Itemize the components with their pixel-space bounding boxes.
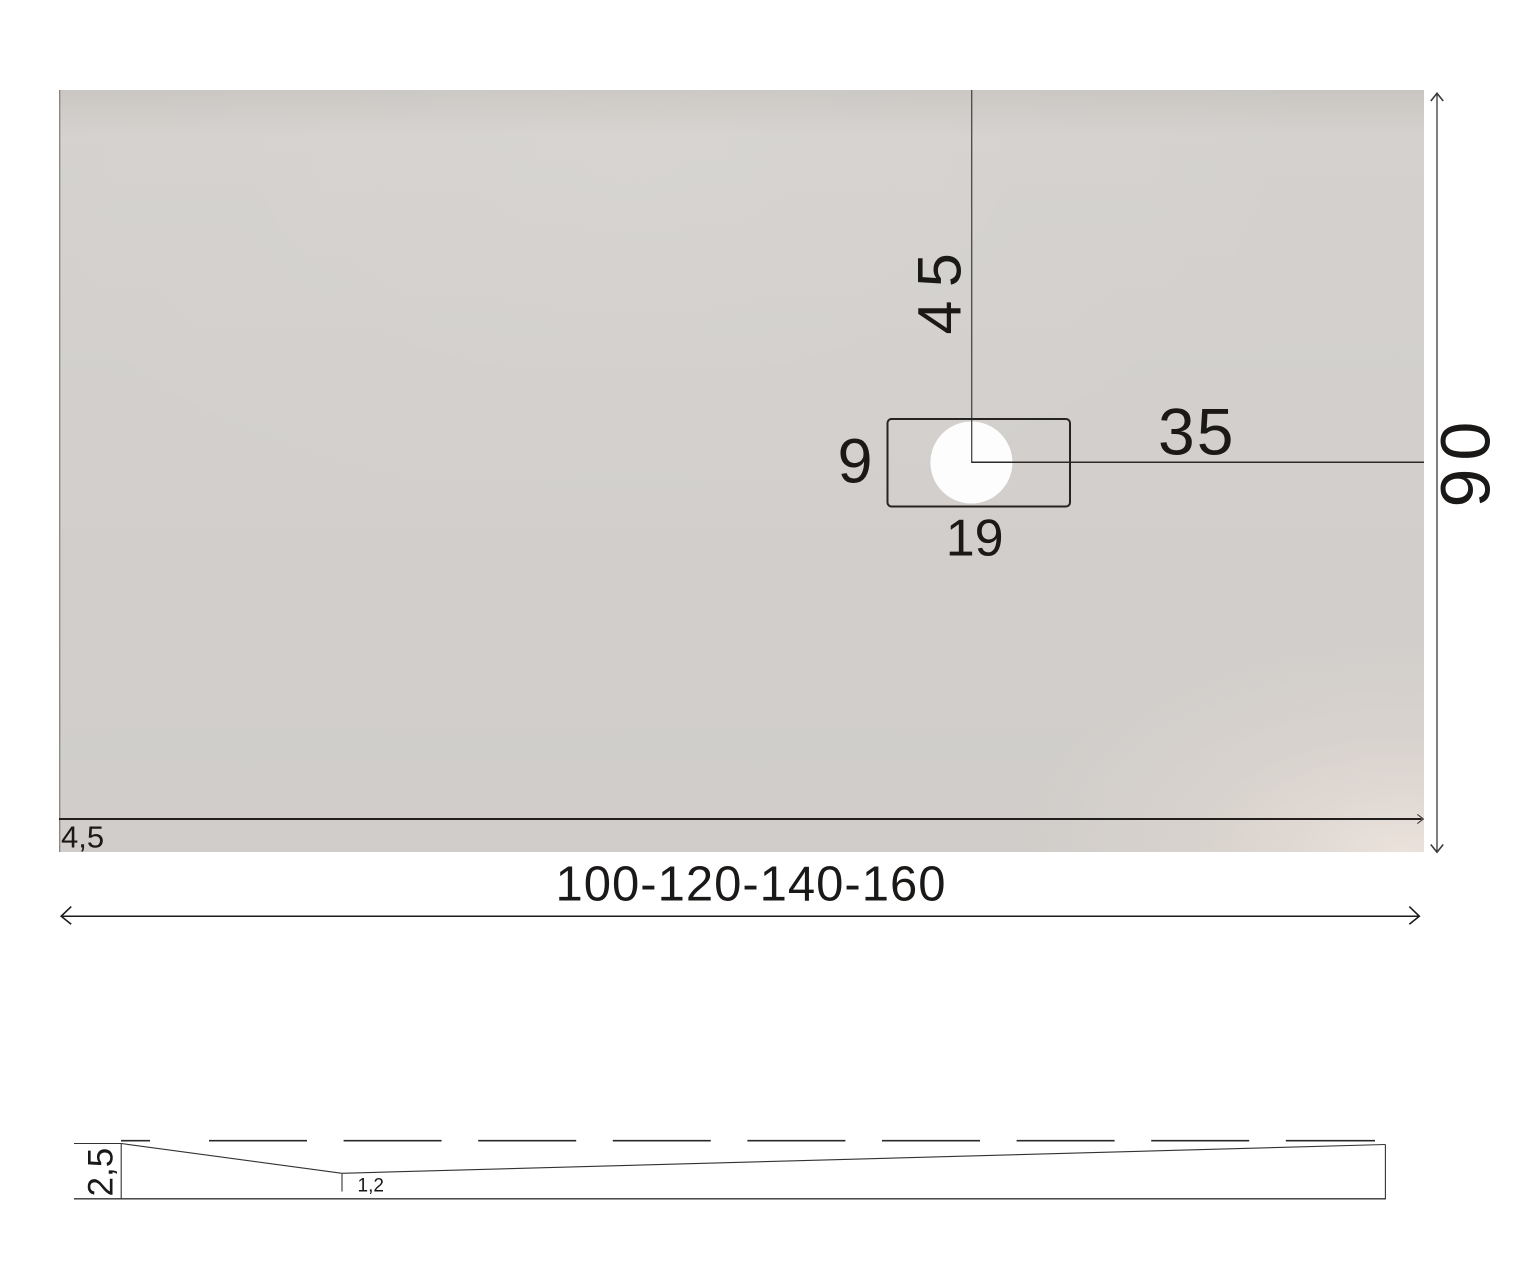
svg-text:90: 90	[1427, 414, 1505, 508]
svg-text:4,5: 4,5	[61, 820, 104, 855]
svg-text:45: 45	[906, 240, 974, 335]
svg-text:19: 19	[946, 509, 1004, 567]
svg-text:100-120-140-160: 100-120-140-160	[556, 858, 947, 912]
svg-text:35: 35	[1158, 395, 1235, 469]
svg-text:2,5: 2,5	[81, 1148, 120, 1197]
svg-text:1,2: 1,2	[358, 1176, 384, 1197]
svg-text:9: 9	[838, 427, 873, 497]
